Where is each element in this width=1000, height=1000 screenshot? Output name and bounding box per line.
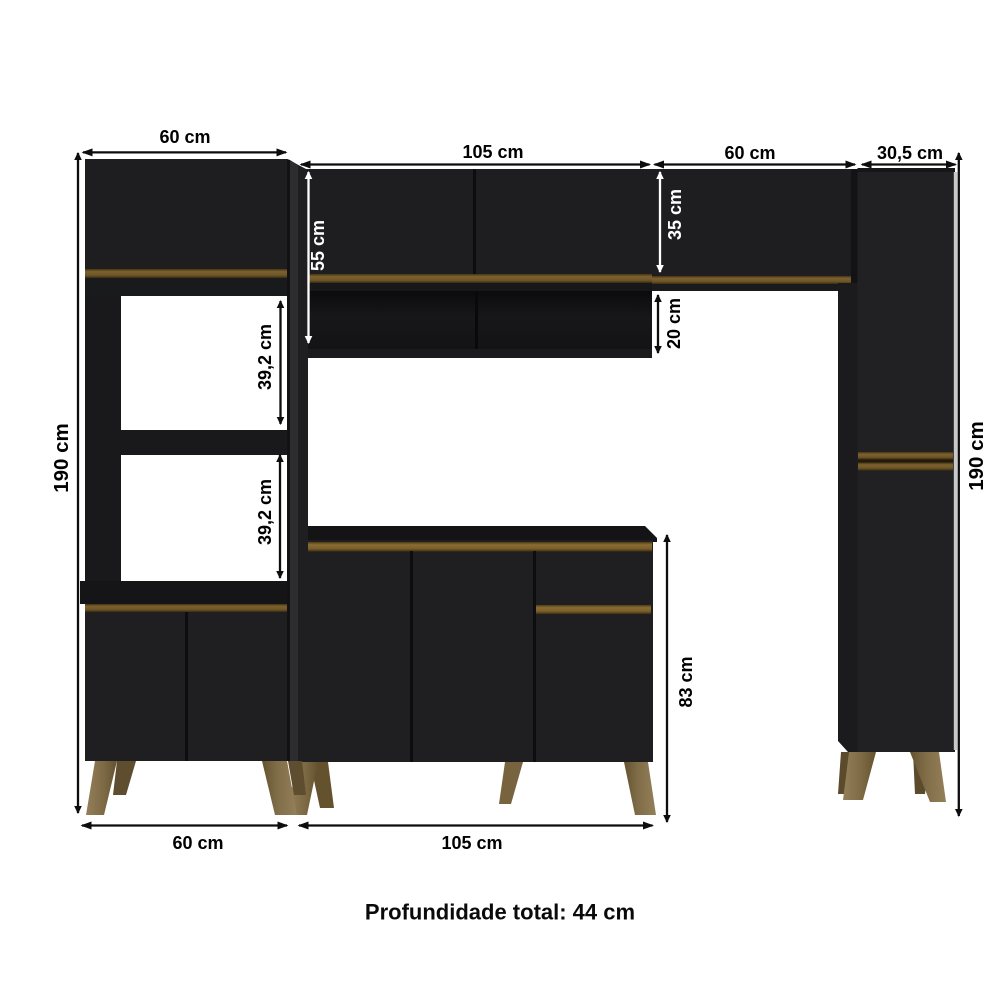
svg-text:60 cm: 60 cm [159, 127, 210, 147]
svg-text:Profundidade total: 44 cm: Profundidade total: 44 cm [365, 900, 635, 925]
svg-text:35 cm: 35 cm [665, 189, 685, 240]
svg-text:39,2 cm: 39,2 cm [255, 479, 275, 545]
svg-text:60 cm: 60 cm [724, 143, 775, 163]
svg-text:190 cm: 190 cm [50, 423, 73, 493]
svg-text:105 cm: 105 cm [441, 833, 502, 853]
svg-text:39,2 cm: 39,2 cm [255, 324, 275, 390]
svg-text:60 cm: 60 cm [172, 833, 223, 853]
svg-text:20 cm: 20 cm [664, 298, 684, 349]
svg-text:190 cm: 190 cm [965, 421, 988, 491]
svg-text:105 cm: 105 cm [462, 142, 523, 162]
svg-text:30,5 cm: 30,5 cm [877, 143, 943, 163]
svg-text:55 cm: 55 cm [308, 220, 328, 271]
svg-text:83 cm: 83 cm [676, 656, 696, 707]
